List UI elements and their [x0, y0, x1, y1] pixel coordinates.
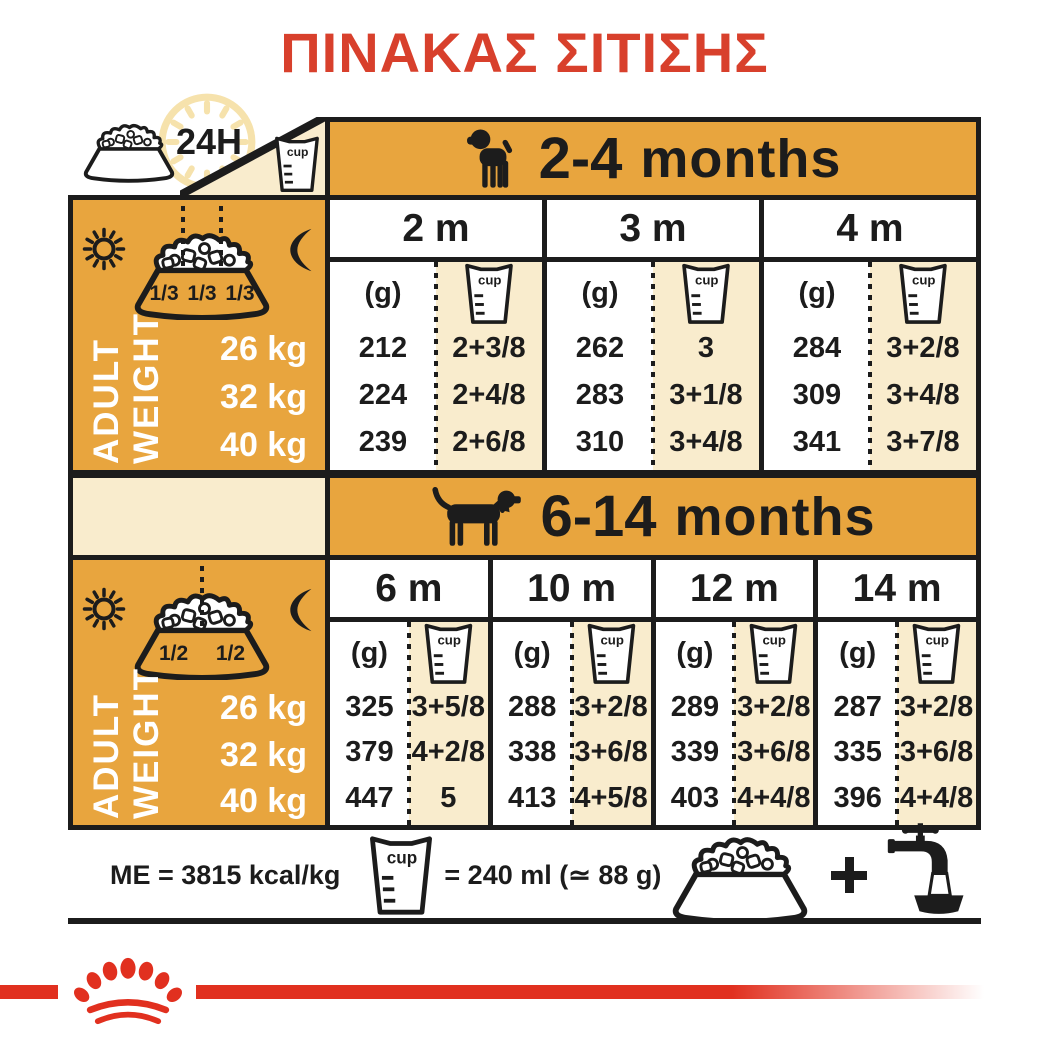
day-split-icons: 1/21/2	[73, 560, 325, 685]
grams-values: 289339403	[656, 685, 735, 825]
daily-ration-cell: 24H cup	[68, 117, 325, 195]
dotted-divider	[868, 262, 872, 470]
grams-unit-label: (g)	[818, 622, 897, 685]
month-label: 4 m	[764, 200, 976, 262]
month-label: 10 m	[493, 560, 651, 622]
month-label-text: 2 m	[402, 207, 469, 251]
grams-subcolumn: (g) 287335396	[818, 622, 897, 825]
moon-icon	[285, 588, 315, 632]
measuring-cup-icon: cup	[275, 135, 319, 193]
royal-canin-crown-logo	[70, 956, 186, 1026]
month-column: 3 m (g) 262283310 cup 33+1/83+4/8	[547, 200, 764, 470]
grams-value: 309	[764, 372, 870, 419]
kibble-bowl-icon	[123, 227, 281, 320]
cups-values: 3+2/83+6/84+4/8	[897, 685, 976, 825]
cups-value: 3+2/8	[870, 325, 976, 372]
cups-value: 2+6/8	[436, 419, 542, 466]
month-label-text: 10 m	[527, 567, 616, 611]
spacer-cell	[73, 478, 325, 555]
grams-value: 289	[656, 685, 735, 730]
sun-icon	[81, 226, 127, 272]
bowl-fractions: 1/31/31/3	[145, 282, 259, 306]
grams-unit-label: (g)	[493, 622, 572, 685]
grams-value: 224	[330, 372, 436, 419]
feeding-table: 24H cup 2-4 months 1/31/31/3	[68, 117, 981, 830]
dotted-divider	[732, 622, 736, 825]
month-label-text: 4 m	[836, 207, 903, 251]
month-label: 14 m	[818, 560, 976, 622]
bowl-fraction-label: 1/3	[183, 282, 221, 306]
feeding-table-page: ΠΙΝΑΚΑΣ ΣΙΤΙΣΗΣ 24H cup 2-4 mont	[0, 0, 1049, 1049]
measuring-cup-icon: cup	[370, 834, 432, 916]
grams-value: 239	[330, 419, 436, 466]
cups-value: 3+7/8	[870, 419, 976, 466]
grams-subcolumn: (g) 262283310	[547, 262, 653, 470]
cups-values: 3+5/84+2/85	[409, 685, 488, 825]
measuring-cup-icon: cup	[653, 262, 759, 325]
grams-unit-label: (g)	[656, 622, 735, 685]
cups-value: 3+6/8	[572, 730, 651, 775]
month-column: 2 m (g) 212224239 cup 2+3/82+4/82+6/8	[330, 200, 547, 470]
grams-unit-label: (g)	[330, 262, 436, 325]
cups-values: 3+2/83+6/84+5/8	[572, 685, 651, 825]
grams-subcolumn: (g) 288338413	[493, 622, 572, 825]
grams-value: 413	[493, 776, 572, 821]
age-unit: months	[640, 128, 841, 190]
grams-value: 262	[547, 325, 653, 372]
grams-value: 339	[656, 730, 735, 775]
day-split-icons: 1/31/31/3	[73, 200, 325, 325]
month-columns-adult: 6 m (g) 325379447 cup 3+5/84+2/85 10 m (…	[330, 560, 976, 825]
dotted-divider	[651, 262, 655, 470]
grams-subcolumn: (g) 212224239	[330, 262, 436, 470]
grams-values: 325379447	[330, 685, 409, 825]
month-label-text: 12 m	[690, 567, 779, 611]
plus-icon	[831, 857, 867, 893]
bowl-fraction-label: 1/3	[145, 282, 183, 306]
cups-subcolumn: cup 33+1/83+4/8	[653, 262, 759, 470]
adult-weight-word: WEIGHT	[127, 687, 167, 819]
cups-value: 4+4/8	[734, 776, 813, 821]
grams-value: 284	[764, 325, 870, 372]
brand-stripe	[196, 985, 984, 999]
month-column-body: (g) 325379447 cup 3+5/84+2/85	[330, 622, 488, 825]
month-label: 6 m	[330, 560, 488, 622]
dotted-divider	[895, 622, 899, 825]
cups-values: 3+2/83+4/83+7/8	[870, 325, 976, 470]
grams-value: 325	[330, 685, 409, 730]
month-label: 12 m	[656, 560, 814, 622]
grams-value: 287	[818, 685, 897, 730]
cups-value: 3+2/8	[897, 685, 976, 730]
cups-value: 4+4/8	[897, 776, 976, 821]
adult-weight-word: WEIGHT	[127, 327, 167, 464]
grams-values: 212224239	[330, 325, 436, 470]
adult-weight-label: ADULTWEIGHT	[87, 687, 167, 819]
daily-split-sidebar: 1/31/31/3 ADULTWEIGHT 26 kg32 kg40 kg	[73, 200, 325, 470]
grams-values: 284309341	[764, 325, 870, 470]
month-label: 3 m	[547, 200, 759, 262]
month-column-body: (g) 212224239 cup 2+3/82+4/82+6/8	[330, 262, 542, 470]
grams-unit-label: (g)	[547, 262, 653, 325]
grams-value: 335	[818, 730, 897, 775]
month-column: 4 m (g) 284309341 cup 3+2/83+4/83+7/8	[764, 200, 976, 470]
bowl-fraction-label: 1/2	[202, 642, 259, 666]
measuring-cup-icon: cup	[572, 622, 651, 685]
grams-subcolumn: (g) 284309341	[764, 262, 870, 470]
svg-text:cup: cup	[763, 633, 786, 648]
svg-text:cup: cup	[478, 273, 501, 288]
section-divider	[68, 470, 981, 478]
cups-subcolumn: cup 3+5/84+2/85	[409, 622, 488, 825]
cups-subcolumn: cup 3+2/83+6/84+4/8	[897, 622, 976, 825]
portion-divider-line	[200, 566, 204, 632]
moon-icon	[285, 228, 315, 272]
svg-text:cup: cup	[926, 633, 949, 648]
grams-values: 262283310	[547, 325, 653, 470]
cups-value: 2+3/8	[436, 325, 542, 372]
adult-weight-word: ADULT	[87, 687, 127, 819]
month-column-body: (g) 287335396 cup 3+2/83+6/84+4/8	[818, 622, 976, 825]
cups-value: 3+2/8	[734, 685, 813, 730]
svg-text:cup: cup	[912, 273, 935, 288]
month-column: 6 m (g) 325379447 cup 3+5/84+2/85	[330, 560, 493, 825]
svg-text:cup: cup	[600, 633, 623, 648]
cups-value: 3+5/8	[409, 685, 488, 730]
svg-text:cup: cup	[695, 273, 718, 288]
grams-subcolumn: (g) 325379447	[330, 622, 409, 825]
portion-bowl: 1/31/31/3	[123, 206, 281, 322]
cups-value: 3+4/8	[870, 372, 976, 419]
age-range: 6-14	[540, 483, 656, 550]
kibble-bowl-icon	[661, 831, 819, 924]
month-columns-puppy: 2 m (g) 212224239 cup 2+3/82+4/82+6/8 3 …	[330, 200, 976, 470]
cups-value: 5	[409, 776, 488, 821]
water-tap-icon	[879, 822, 967, 916]
table-border	[68, 825, 981, 830]
grams-value: 403	[656, 776, 735, 821]
grams-value: 379	[330, 730, 409, 775]
grams-subcolumn: (g) 289339403	[656, 622, 735, 825]
sun-icon	[81, 586, 127, 632]
bowl-fraction-label: 1/3	[221, 282, 259, 306]
svg-text:cup: cup	[387, 848, 418, 868]
measuring-cup-icon: cup	[897, 622, 976, 685]
dotted-divider	[407, 622, 411, 825]
cups-value: 3+6/8	[734, 730, 813, 775]
month-column-body: (g) 262283310 cup 33+1/83+4/8	[547, 262, 759, 470]
section-header-puppy: 2-4 months	[330, 122, 976, 195]
cups-value: 3+2/8	[572, 685, 651, 730]
adult-dog-icon	[430, 485, 522, 549]
grams-values: 287335396	[818, 685, 897, 825]
dotted-divider	[434, 262, 438, 470]
grams-value: 396	[818, 776, 897, 821]
puppy-icon	[465, 125, 521, 193]
grams-value: 338	[493, 730, 572, 775]
adult-weight-area: ADULTWEIGHT 26 kg32 kg40 kg	[73, 325, 325, 470]
age-range: 2-4	[539, 125, 623, 192]
month-column: 10 m (g) 288338413 cup 3+2/83+6/84+5/8	[493, 560, 656, 825]
cups-value: 3+4/8	[653, 419, 759, 466]
age-unit: months	[675, 486, 876, 548]
cups-value: 4+5/8	[572, 776, 651, 821]
month-label: 2 m	[330, 200, 542, 262]
month-column: 12 m (g) 289339403 cup 3+2/83+6/84+4/8	[656, 560, 819, 825]
grams-value: 341	[764, 419, 870, 466]
cups-values: 33+1/83+4/8	[653, 325, 759, 470]
portion-bowl: 1/21/2	[123, 566, 281, 682]
month-column-body: (g) 288338413 cup 3+2/83+6/84+5/8	[493, 622, 651, 825]
cups-subcolumn: cup 2+3/82+4/82+6/8	[436, 262, 542, 470]
grams-unit-label: (g)	[764, 262, 870, 325]
month-label-text: 3 m	[619, 207, 686, 251]
portion-divider-line	[181, 206, 185, 272]
grams-value: 447	[330, 776, 409, 821]
grams-value: 212	[330, 325, 436, 372]
dotted-divider	[570, 622, 574, 825]
page-title: ΠΙΝΑΚΑΣ ΣΙΤΙΣΗΣ	[0, 20, 1049, 85]
grams-value: 310	[547, 419, 653, 466]
cups-value: 3	[653, 325, 759, 372]
svg-text:cup: cup	[437, 633, 460, 648]
footer-rule	[68, 918, 981, 924]
grams-value: 283	[547, 372, 653, 419]
section-header-adult: 6-14 months	[330, 478, 976, 555]
cups-value: 2+4/8	[436, 372, 542, 419]
measuring-cup-icon: cup	[436, 262, 542, 325]
month-column-body: (g) 289339403 cup 3+2/83+6/84+4/8	[656, 622, 814, 825]
measuring-cup-icon: cup	[734, 622, 813, 685]
measuring-cup-icon: cup	[409, 622, 488, 685]
bowl-fraction-label: 1/2	[145, 642, 202, 666]
brand-stripe	[0, 985, 58, 999]
bowl-fractions: 1/21/2	[145, 642, 259, 666]
portion-divider-line	[219, 206, 223, 272]
cups-subcolumn: cup 3+2/83+6/84+5/8	[572, 622, 651, 825]
grams-value: 288	[493, 685, 572, 730]
month-label-text: 6 m	[375, 567, 442, 611]
cups-subcolumn: cup 3+2/83+6/84+4/8	[734, 622, 813, 825]
daily-split-sidebar: 1/21/2 ADULTWEIGHT 26 kg32 kg40 kg	[73, 560, 325, 825]
cups-values: 2+3/82+4/82+6/8	[436, 325, 542, 470]
adult-weight-label: ADULTWEIGHT	[87, 327, 167, 464]
measuring-cup-icon: cup	[870, 262, 976, 325]
footer-legend: ME = 3815 kcal/kg cup = 240 ml (≃ 88 g)	[68, 832, 981, 918]
energy-value: ME = 3815 kcal/kg	[110, 860, 340, 891]
cups-values: 3+2/83+6/84+4/8	[734, 685, 813, 825]
grams-unit-label: (g)	[330, 622, 409, 685]
cup-equivalence: = 240 ml (≃ 88 g)	[444, 860, 661, 891]
cups-subcolumn: cup 3+2/83+4/83+7/8	[870, 262, 976, 470]
cups-value: 3+6/8	[897, 730, 976, 775]
month-column-body: (g) 284309341 cup 3+2/83+4/83+7/8	[764, 262, 976, 470]
kibble-bowl-icon	[76, 119, 182, 183]
adult-weight-word: ADULT	[87, 327, 127, 464]
grams-values: 288338413	[493, 685, 572, 825]
cups-value: 4+2/8	[409, 730, 488, 775]
month-column: 14 m (g) 287335396 cup 3+2/83+6/84+4/8	[818, 560, 976, 825]
adult-weight-area: ADULTWEIGHT 26 kg32 kg40 kg	[73, 685, 325, 825]
svg-text:cup: cup	[287, 145, 309, 159]
cups-value: 3+1/8	[653, 372, 759, 419]
month-label-text: 14 m	[853, 567, 942, 611]
